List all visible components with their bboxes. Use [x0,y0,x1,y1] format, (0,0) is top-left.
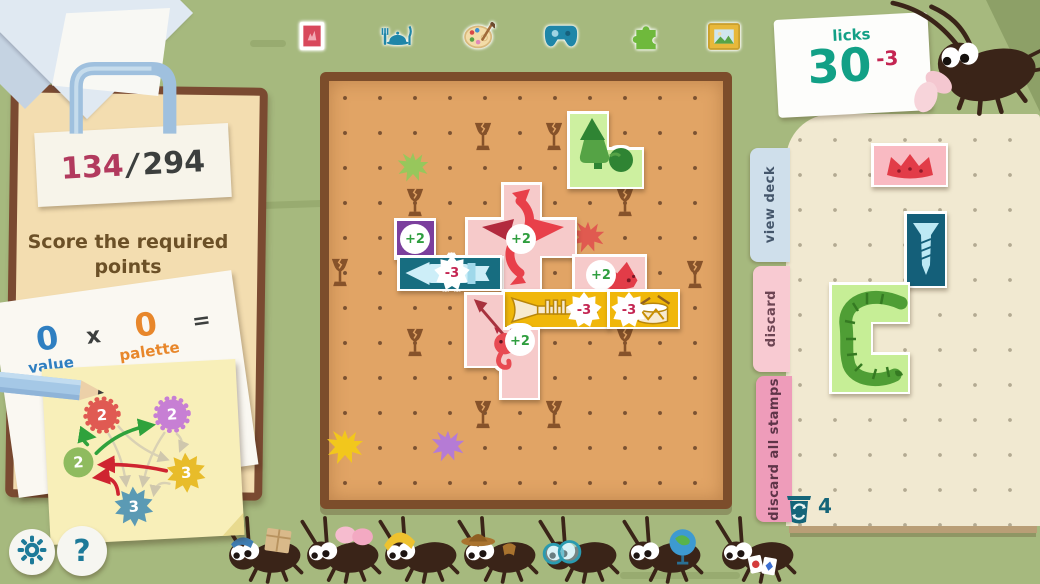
score-divider: / [127,147,140,183]
broken-glass-icon [329,258,351,287]
screw-stamp[interactable] [907,214,945,286]
bug-playing-cards[interactable] [708,514,802,584]
crown-icon [884,151,936,181]
plus-badge: +2 [586,260,616,290]
bug-cowboy-hat[interactable] [450,514,544,584]
goal-instruction: Score the required points [22,230,234,279]
worm-icon [833,287,909,391]
tab-discard[interactable]: discard [753,266,790,372]
discard-count: 4 [818,494,832,518]
svg-text:2: 2 [73,453,84,472]
svg-text:2: 2 [166,405,177,424]
plus-badge: +2 [505,326,535,356]
palette-term: 0 palette [113,304,180,364]
broken-glass-icon [684,260,706,289]
dinner-category-icon[interactable] [379,19,413,53]
palette-number: 0 [133,307,160,342]
imp-stamp[interactable]: +2 [467,295,538,398]
broken-glass-icon [614,328,636,357]
score-current: 134 [60,148,124,186]
clipboard-clip [62,56,184,136]
stamp-category-icon[interactable] [295,19,329,53]
score-target: 294 [142,144,206,182]
screw-icon [911,221,941,279]
game-controller-category-icon[interactable] [544,19,578,53]
broken-glass-icon [472,122,494,151]
wood-streak [250,40,286,47]
art-palette-category-icon[interactable] [462,19,496,53]
equals-operator: = [191,308,213,335]
fox-stamp[interactable]: +2 [575,257,645,292]
drum-stamp[interactable]: -3 [610,292,678,327]
paint-splat [430,429,466,469]
broken-glass-icon [472,400,494,429]
paint-splat [325,428,365,472]
rocket-stamp[interactable]: -3 [400,258,500,289]
svg-text:3: 3 [180,464,191,483]
svg-text:3: 3 [128,497,139,516]
broken-glass-icon [404,328,426,357]
gear-icon [16,534,48,570]
plus-badge: +2 [506,224,536,254]
puzzle-category-icon[interactable] [629,19,663,53]
game-screen: 18 Previous Stamp 134 / 294 Score the re… [0,0,1040,584]
worm-stamp[interactable] [832,285,908,392]
plus-badge: +2 [400,224,430,254]
plus-two-purple-stamp[interactable]: +2 [397,221,434,258]
tab-view-deck[interactable]: view deck [750,148,790,262]
licks-count: 30 [806,43,872,90]
value-number: 0 [34,321,61,356]
gnome-stamp[interactable] [570,114,642,187]
crown-stamp[interactable] [874,146,946,185]
help-button[interactable]: ? [57,526,107,576]
broken-glass-icon [614,188,636,217]
broken-glass-icon [543,400,565,429]
tab-label: discard [764,290,779,347]
paint-splat [396,151,430,189]
tab-label: view deck [763,166,778,243]
palette-label: palette [118,338,181,364]
gnome-icon [572,116,638,182]
broken-glass-icon [543,122,565,151]
tab-label: discard all stamps [767,378,782,521]
bug-round-glasses[interactable] [531,514,625,584]
broken-glass-icon [404,188,426,217]
paint-splat [570,220,606,260]
picture-frame-category-icon[interactable] [707,19,741,53]
settings-button[interactable] [9,529,55,575]
bug-globe[interactable] [615,514,709,584]
times-operator: x [85,323,103,350]
licking-cockroach[interactable] [878,0,1040,130]
